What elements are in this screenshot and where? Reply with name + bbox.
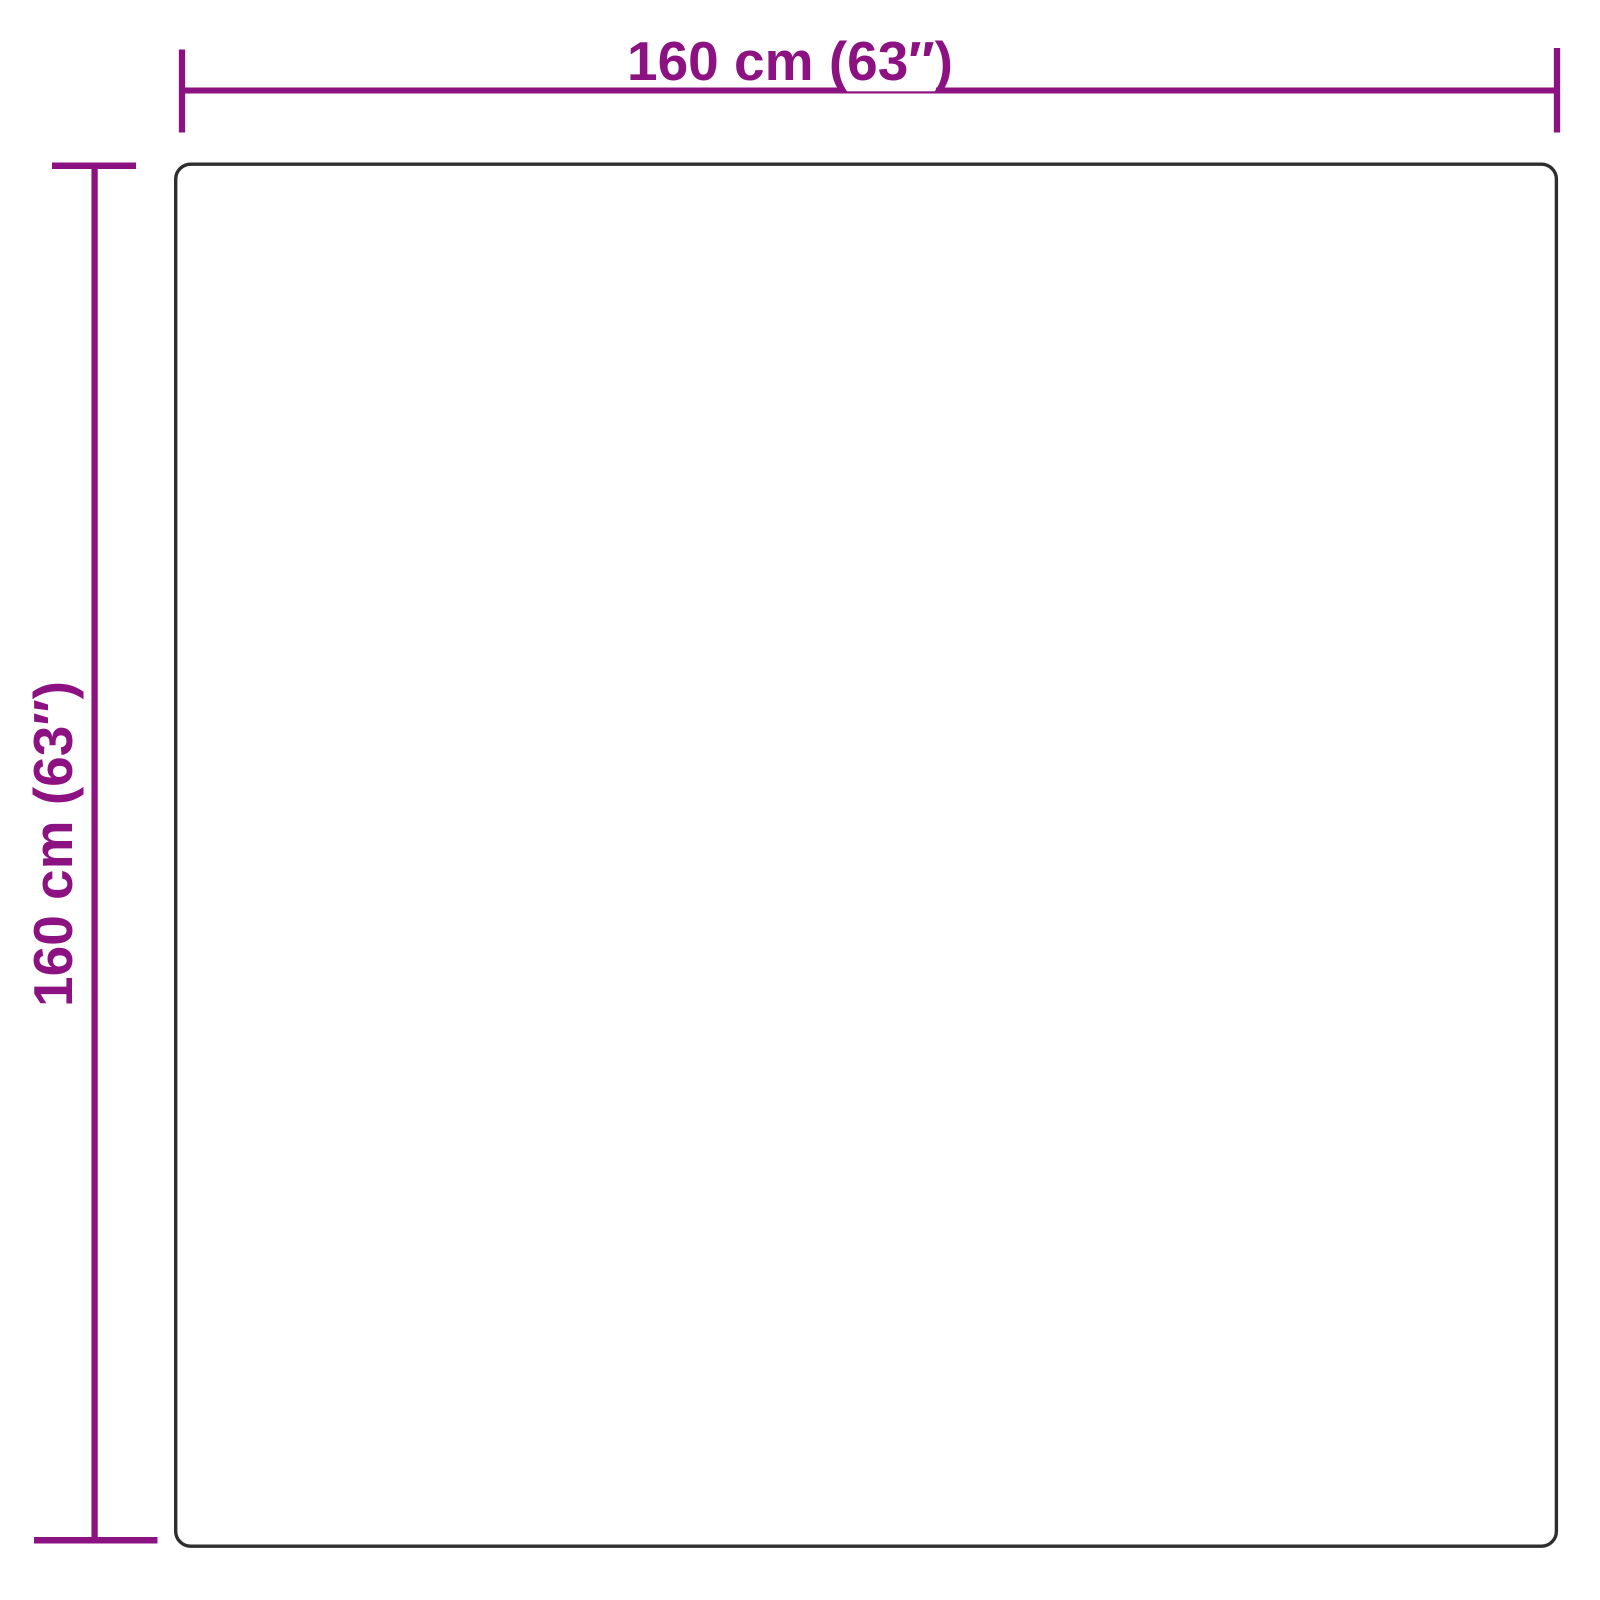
svg-text:160 cm (63″): 160 cm (63″) (22, 681, 84, 1007)
svg-text:160 cm (63″): 160 cm (63″) (627, 30, 953, 92)
